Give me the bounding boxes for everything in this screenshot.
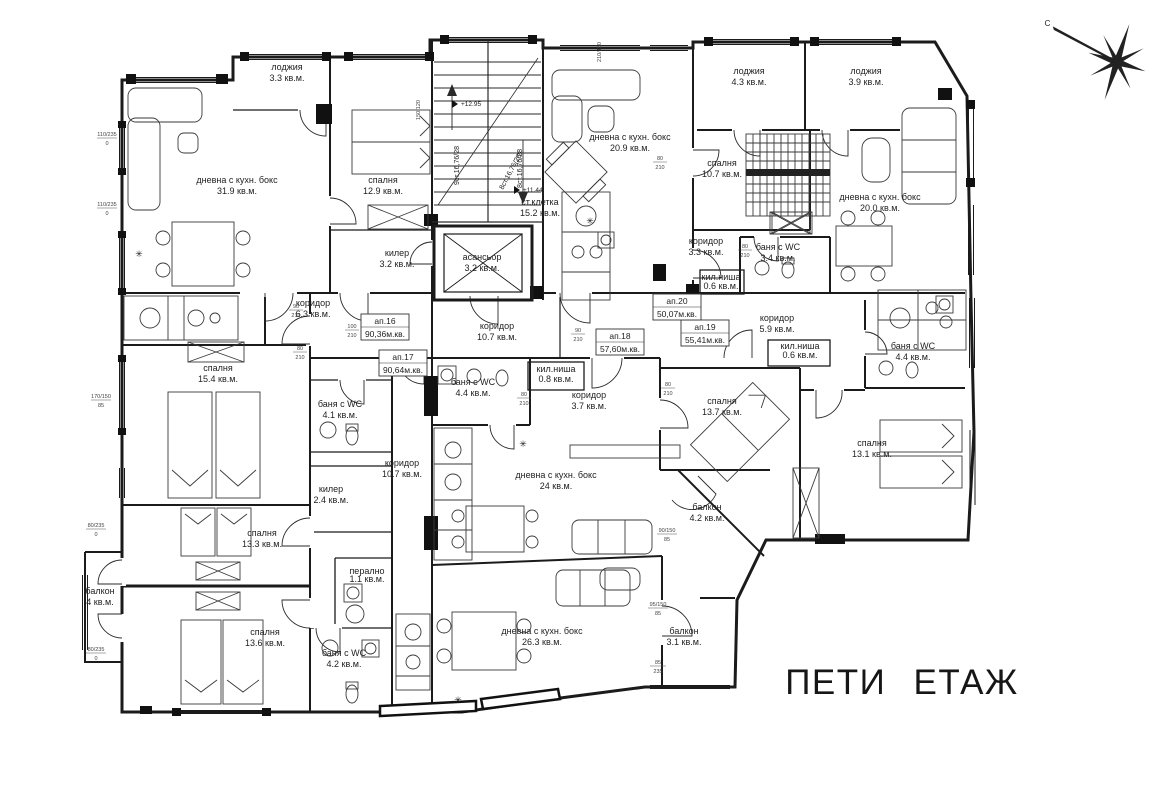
floor-title: ПЕТИ ЕТАЖ [785, 663, 1018, 702]
room-area: 10.7 кв.м. [382, 469, 422, 479]
dim-top: 90 [293, 304, 299, 310]
room-label: коридор [385, 458, 419, 468]
stair-flight-label: 8ст.16,76/28 [517, 149, 524, 188]
dim-top: 80 [657, 156, 663, 162]
room-area: 4.1 кв.м. [323, 410, 358, 420]
apt-area: 50,07м.кв. [657, 309, 697, 319]
apt-id: ап.18 [609, 331, 630, 341]
dim-top: 85 [655, 660, 661, 666]
room-area: 10.7 кв.м. [702, 169, 742, 179]
dim-top: 80 [742, 244, 748, 250]
room-area: 0.6 кв.м. [704, 281, 739, 291]
room-area: 0.8 кв.м. [539, 374, 574, 384]
room-label: дневна с кухн. бокс [589, 132, 671, 142]
apt-area: 57,60м.кв. [600, 344, 640, 354]
room-area: 13.6 кв.м. [245, 638, 285, 648]
room-area: 3.3 кв.м. [270, 73, 305, 83]
dim-bottom: 210 [663, 391, 672, 397]
room-label: лоджия [733, 66, 764, 76]
room-label: коридор [480, 321, 514, 331]
room-area: 4.2 кв.м. [690, 513, 725, 523]
kitchen-ap20 [562, 192, 610, 300]
room-area: 3.2 кв.м. [465, 263, 500, 273]
room-label: баня с WC [756, 242, 801, 252]
room-area: 4.2 кв.м. [327, 659, 362, 669]
hatched-bed [746, 134, 830, 234]
apt-id: ап.20 [666, 296, 687, 306]
room-area: 24 кв.м. [540, 481, 572, 491]
dim-top: 80 [665, 382, 671, 388]
floor-plan-drawing: ✳ ✳ ✳ ✳ лоджия 3.3 кв.м. дневна с кухн. … [0, 0, 1170, 785]
room-label: ст.клетка [521, 197, 558, 207]
room-area: 0.6 кв.м. [783, 350, 818, 360]
apt-id: ап.17 [392, 352, 413, 362]
apt-badge: ап.19 55,41м.кв. [681, 320, 729, 346]
room-area: 13.1 кв.м. [852, 449, 892, 459]
apt-badge: ап.16 90,36м.кв. [361, 314, 409, 340]
floor-plan-page: ✳ ✳ ✳ ✳ лоджия 3.3 кв.м. дневна с кухн. … [0, 0, 1170, 785]
level-mark: +11.44 [523, 187, 543, 194]
dim-rotated: 210/150 [597, 42, 603, 62]
dim-bottom: 0 [94, 656, 97, 662]
compass-north-ray [1048, 26, 1121, 63]
sink-star-icon: ✳ [586, 216, 594, 226]
room-label: спалня [203, 363, 233, 373]
dim-top: 170/150 [91, 394, 111, 400]
room-label: коридор [572, 390, 606, 400]
room-label: дневна с кухн. бокс [515, 470, 597, 480]
dim-top: 95/150 [650, 602, 667, 608]
room-label: лоджия [850, 66, 881, 76]
staircase [432, 40, 543, 222]
door-dim: 90210 [571, 328, 585, 343]
dim-bottom: 0 [105, 211, 108, 217]
room-area: 20.0 кв.м. [860, 203, 900, 213]
dim-bottom: 0 [94, 532, 97, 538]
double-bed [352, 110, 430, 229]
kitchen-bottom [396, 614, 430, 690]
dim-bottom: 0 [105, 141, 108, 147]
room-area: 15.4 кв.м. [198, 374, 238, 384]
stair-flight-label: 9ст.16,76/28 [454, 146, 461, 185]
room-label: дневна с кухн. бокс [501, 626, 583, 636]
room-area: 3.2 кв.м. [380, 259, 415, 269]
door-dim: 80210 [293, 346, 307, 361]
apt-id: ап.19 [694, 322, 715, 332]
dim-rotated: 150/120 [416, 100, 422, 120]
room-label: спалня [857, 438, 887, 448]
room-label: спалня [250, 627, 280, 637]
room-area: 3.3 кв.м. [689, 247, 724, 257]
dim: 80/2350 [86, 523, 106, 538]
room-label: килер [385, 248, 409, 258]
dim-top: 90/150 [659, 528, 676, 534]
apt-id: ап.16 [374, 316, 395, 326]
room-label: спалня [707, 158, 737, 168]
apt-area: 90,36м.кв. [365, 329, 405, 339]
dim: 110/2350 [97, 132, 117, 147]
apt-area: 55,41м.кв. [685, 335, 725, 345]
dim: 170/15085 [91, 394, 111, 409]
apt-area: 90,64м.кв. [383, 365, 423, 375]
room-label: баня с WC [322, 648, 367, 658]
corner-sofa [128, 88, 202, 210]
room-area: 4 кв.м. [86, 597, 113, 607]
sink-star-icon: ✳ [519, 439, 527, 449]
dim-bottom: 235 [653, 669, 662, 675]
room-label: килер [319, 484, 343, 494]
dining-table [156, 222, 250, 286]
room-area: 3.9 кв.м. [849, 77, 884, 87]
twin-beds-2 [181, 508, 251, 610]
dim-bottom: 210 [347, 333, 356, 339]
room-area: 12.9 кв.м. [363, 186, 403, 196]
room-area: 15.2 кв.м. [520, 208, 560, 218]
room-area: 31.9 кв.м. [217, 186, 257, 196]
room-label: спалня [368, 175, 398, 185]
dim-top: 90 [575, 328, 581, 334]
dim-bottom: 85 [655, 611, 661, 617]
room-area: 10.7 кв.м. [477, 332, 517, 342]
sink-star-icon: ✳ [135, 249, 143, 259]
room-label: коридор [689, 236, 723, 246]
room-label: дневна с кухн. бокс [839, 192, 921, 202]
dim-top: 110/235 [97, 132, 116, 138]
dim-top: 110/235 [97, 202, 116, 208]
dim-top: 80 [521, 392, 527, 398]
door-dim: 80210 [517, 392, 531, 407]
room-label: спалня [707, 396, 737, 406]
sofa-24 [572, 520, 652, 590]
dim-bottom: 210 [519, 401, 528, 407]
door-dim: 80210 [653, 156, 667, 171]
room-label: балкон [669, 626, 698, 636]
dim-top: 100 [347, 324, 356, 330]
room-label: баня с WC [891, 341, 936, 351]
apt-badge: ап.17 90,64м.кв. [379, 350, 427, 376]
kitchen-counter [124, 296, 238, 340]
dim-bottom: 85 [98, 403, 104, 409]
room-area: 5.9 кв.м. [760, 324, 795, 334]
shelf [570, 445, 680, 458]
room-area: 4.4 кв.м. [456, 388, 491, 398]
room-area: 20.9 кв.м. [610, 143, 650, 153]
dim: 110/2350 [97, 202, 117, 217]
room-area: 26.3 кв.м. [522, 637, 562, 647]
room-area: 13.7 кв.м. [702, 407, 742, 417]
room-area: 3.4 кв.м. [761, 253, 796, 263]
dim-bottom: 85 [664, 537, 670, 543]
room-label: баня с WC [451, 377, 496, 387]
bottom-slanted-windows [380, 689, 560, 716]
room-area: 4.3 кв.м. [732, 77, 767, 87]
room-area: 4.4 кв.м. [896, 352, 931, 362]
dim: 85235 [650, 660, 666, 675]
diagonal-bed [691, 383, 790, 482]
door-dim: 80210 [661, 382, 675, 397]
dim-bottom: 210 [740, 253, 749, 259]
room-label: балкон [692, 502, 721, 512]
sofa-26 [437, 570, 630, 670]
room-label: коридор [296, 298, 330, 308]
apt-badge: ап.18 57,60м.кв. [596, 329, 644, 355]
dim: 90/15085 [657, 528, 677, 543]
room-label: дневна с кухн. бокс [196, 175, 278, 185]
sink-star-icon: ✳ [454, 695, 462, 705]
dim-bottom: 210 [655, 165, 664, 171]
room-label: спалня [247, 528, 277, 538]
compass-north-label: С [1045, 19, 1051, 28]
dim-bottom: 210 [291, 313, 300, 319]
room-area: 1.1 кв.м. [350, 574, 385, 584]
dim-top: 80/235 [88, 523, 105, 529]
room-label: кил.ниша [537, 364, 576, 374]
dim: 80/2350 [86, 647, 106, 662]
room-area: 3.1 кв.м. [667, 637, 702, 647]
door-dim: 100210 [345, 324, 359, 339]
dim-bottom: 210 [295, 355, 304, 361]
room-area: 3.7 кв.м. [572, 401, 607, 411]
compass-rose: С [1026, 0, 1170, 115]
room-label: баня с WC [318, 399, 363, 409]
apt-badge: ап.20 50,07м.кв. [653, 294, 701, 320]
dim-top: 80 [297, 346, 303, 352]
room-area: 6.3 кв.м. [296, 309, 331, 319]
room-label: балкон [85, 586, 114, 596]
dim-top: 80/235 [88, 647, 105, 653]
dim-bottom: 210 [573, 337, 582, 343]
room-label: асансьор [463, 252, 502, 262]
level-mark: +12.95 [461, 101, 481, 108]
room-label: лоджия [271, 62, 302, 72]
room-area: 2.4 кв.м. [314, 495, 349, 505]
room-label: коридор [760, 313, 794, 323]
room-area: 13.3 кв.м. [242, 539, 282, 549]
